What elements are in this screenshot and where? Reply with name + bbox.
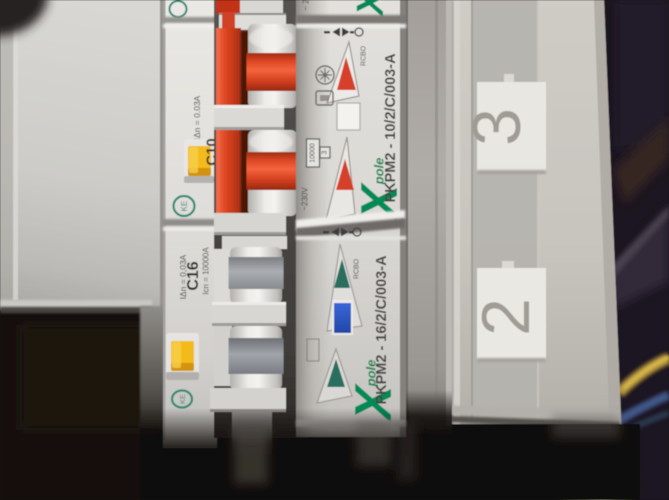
- svg-text:3: 3: [459, 108, 535, 146]
- svg-text:~230V: ~230V: [301, 187, 310, 211]
- svg-text:~ 2: ~ 2: [302, 0, 311, 11]
- svg-text:3: 3: [322, 150, 329, 154]
- svg-text:KE: KE: [180, 201, 189, 212]
- svg-text:Icn = 10000A: Icn = 10000A: [202, 247, 211, 295]
- svg-text:PKPM2 - 16/2/C/003-A: PKPM2 - 16/2/C/003-A: [374, 255, 390, 405]
- svg-text:RCBO: RCBO: [354, 258, 361, 279]
- svg-text:10000: 10000: [310, 143, 317, 163]
- svg-text:PKPM2 - 10/2/C/003-A: PKPM2 - 10/2/C/003-A: [383, 53, 399, 203]
- svg-text:2: 2: [468, 298, 544, 336]
- svg-text:IΔn = 0.03A: IΔn = 0.03A: [192, 95, 202, 140]
- svg-text:KE: KE: [178, 394, 187, 404]
- svg-text:RCBO: RCBO: [361, 45, 368, 66]
- svg-text:C16: C16: [185, 261, 202, 290]
